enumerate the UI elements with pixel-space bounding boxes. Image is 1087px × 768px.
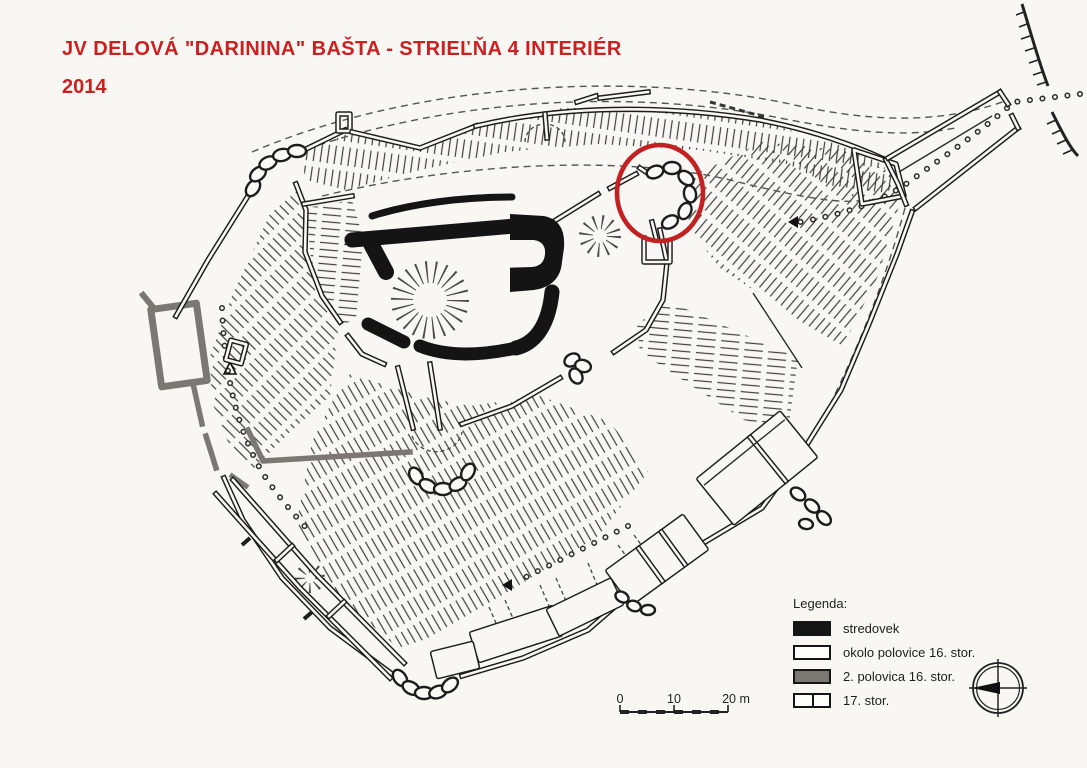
legend-label: stredovek bbox=[843, 621, 899, 636]
entrance-corridor bbox=[888, 92, 1018, 208]
legend-row-17-stor: 17. stor. bbox=[793, 693, 975, 708]
legend-row-2-polovica-16: 2. polovica 16. stor. bbox=[793, 669, 975, 684]
legend-swatch-white-icon bbox=[793, 645, 831, 660]
scale-label-0: 0 bbox=[617, 692, 624, 706]
scale-label-10: 10 bbox=[667, 692, 681, 706]
medieval-core-walls bbox=[352, 197, 564, 354]
cliff-marks bbox=[1016, 4, 1078, 156]
scale-bar: 0 10 20 m bbox=[617, 692, 750, 712]
legend: Legenda: stredovek okolo polovice 16. st… bbox=[793, 596, 975, 717]
legend-label: 2. polovica 16. stor. bbox=[843, 669, 955, 684]
legend-row-stredovek: stredovek bbox=[793, 621, 975, 636]
drawing-title: JV DELOVÁ "DARININA" BAŠTA - STRIEĽŇA 4 … bbox=[62, 38, 622, 99]
legend-label: 17. stor. bbox=[843, 693, 889, 708]
legend-swatch-divided-icon bbox=[793, 693, 831, 708]
scale-label-20m: 20 m bbox=[722, 692, 750, 706]
legend-label: okolo polovice 16. stor. bbox=[843, 645, 975, 660]
title-line-2: 2014 bbox=[62, 76, 622, 99]
castle-plan-page: 0 10 20 m JV DELOVÁ "DARININA" BAŠTA - S… bbox=[0, 0, 1087, 768]
legend-row-okolo-polovice-16: okolo polovice 16. stor. bbox=[793, 645, 975, 660]
compass-rose-icon bbox=[969, 659, 1027, 717]
legend-swatch-gray-icon bbox=[793, 669, 831, 684]
title-line-1: JV DELOVÁ "DARININA" BAŠTA - STRIEĽŇA 4 … bbox=[62, 38, 622, 61]
legend-swatch-black-icon bbox=[793, 621, 831, 636]
east-tower bbox=[562, 351, 592, 386]
north-needle bbox=[972, 682, 1000, 694]
legend-title: Legenda: bbox=[793, 596, 975, 611]
darinina-bastion bbox=[640, 162, 697, 262]
